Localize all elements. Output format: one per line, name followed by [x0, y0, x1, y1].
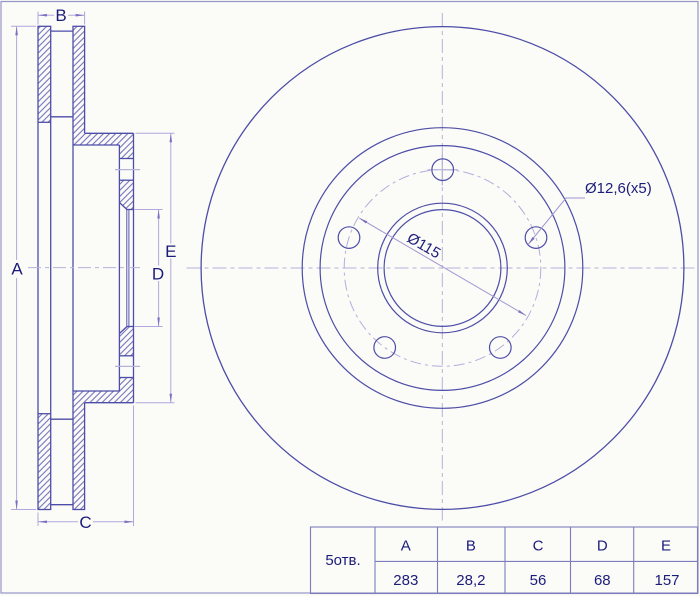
svg-text:B: B: [466, 538, 476, 555]
svg-text:D: D: [152, 265, 164, 284]
svg-text:C: C: [79, 513, 91, 532]
svg-text:D: D: [597, 538, 608, 555]
svg-text:A: A: [11, 260, 23, 279]
svg-text:B: B: [55, 6, 66, 25]
svg-text:157: 157: [654, 572, 679, 589]
svg-text:68: 68: [594, 572, 611, 589]
svg-text:A: A: [401, 538, 411, 555]
svg-text:E: E: [165, 242, 176, 261]
svg-text:C: C: [533, 538, 544, 555]
svg-text:5отв.: 5отв.: [325, 552, 360, 569]
svg-text:56: 56: [530, 572, 547, 589]
svg-text:283: 283: [393, 572, 418, 589]
svg-text:28,2: 28,2: [456, 572, 485, 589]
svg-text:E: E: [661, 538, 671, 555]
svg-text:Ø12,6(x5): Ø12,6(x5): [585, 180, 652, 197]
